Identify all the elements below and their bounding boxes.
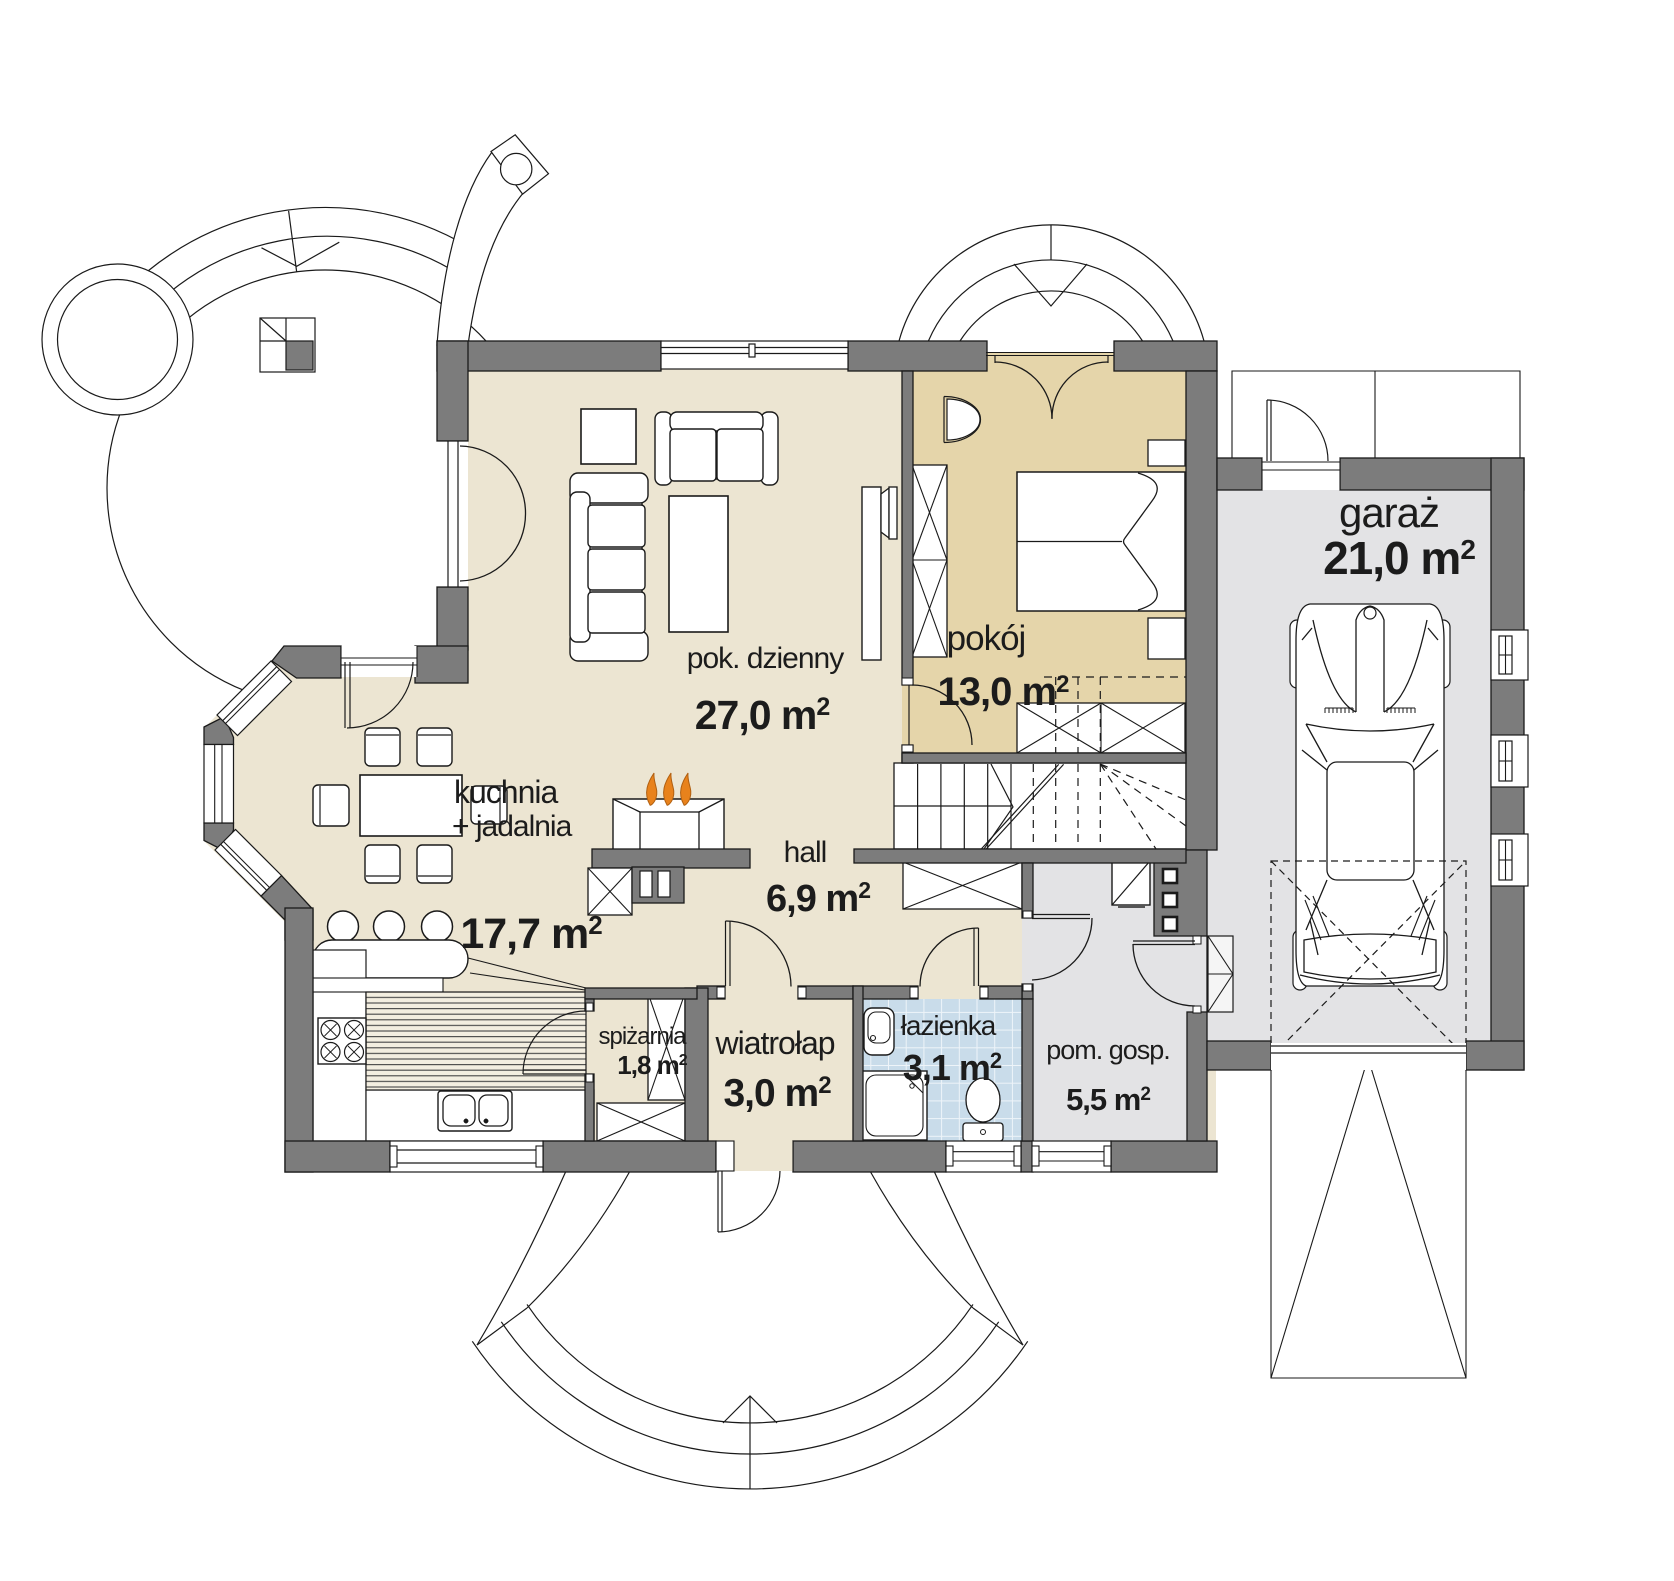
svg-text:garaż: garaż <box>1339 489 1439 536</box>
svg-text:21,0 m2: 21,0 m2 <box>1323 532 1475 584</box>
svg-text:kuchnia: kuchnia <box>454 774 559 810</box>
svg-text:3,0 m2: 3,0 m2 <box>723 1072 831 1115</box>
svg-text:1,8 m2: 1,8 m2 <box>617 1050 688 1080</box>
svg-text:5,5 m2: 5,5 m2 <box>1066 1082 1150 1117</box>
svg-text:pom. gosp.: pom. gosp. <box>1046 1035 1170 1065</box>
svg-text:+ jadalnia: + jadalnia <box>452 810 573 843</box>
svg-text:13,0 m2: 13,0 m2 <box>938 670 1070 714</box>
svg-text:6,9 m2: 6,9 m2 <box>766 877 870 920</box>
svg-text:17,7 m2: 17,7 m2 <box>460 910 602 958</box>
svg-text:27,0 m2: 27,0 m2 <box>695 692 830 738</box>
svg-text:spiżarnia: spiżarnia <box>598 1023 687 1050</box>
svg-text:pokój: pokój <box>947 619 1026 658</box>
svg-text:3,1 m2: 3,1 m2 <box>903 1047 1002 1088</box>
svg-text:hall: hall <box>784 836 827 869</box>
svg-text:pok. dzienny: pok. dzienny <box>687 642 844 675</box>
svg-text:łazienka: łazienka <box>901 1010 997 1041</box>
svg-text:wiatrołap: wiatrołap <box>714 1025 834 1061</box>
